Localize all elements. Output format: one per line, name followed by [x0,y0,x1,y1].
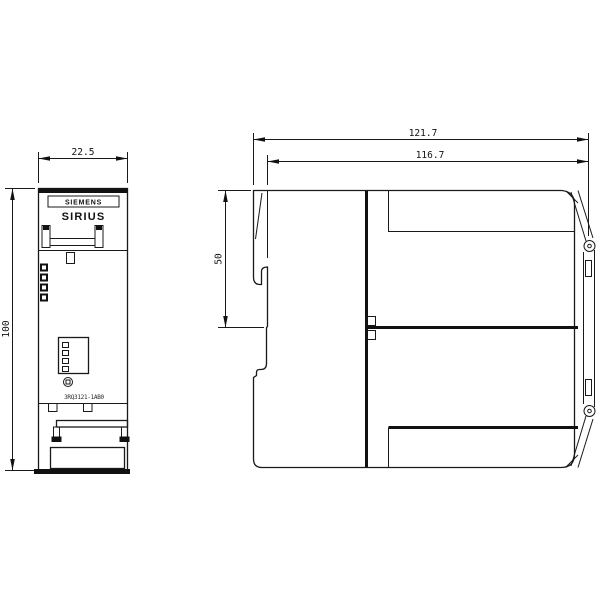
dim-arrow-top [10,189,15,201]
lever-slot-upper [586,261,592,277]
front-width-dimension: 22.5 [39,147,128,183]
lower-notch-left [49,404,58,412]
side-depth-body-dimension: 116.7 [268,150,589,185]
dim-arrow-top [223,191,228,203]
dim-arrow-bottom [10,459,15,471]
dim-arrow-left [39,156,51,161]
brand-logo-text: SIEMENS [65,200,102,207]
led-indicators [40,264,48,302]
front-height-dimension: 100 [1,189,35,471]
product-name-text: SIRIUS [62,211,106,223]
side-rail-section-label: 50 [214,253,225,265]
upper-terminal-lever [566,191,595,252]
rail-hook-spring [256,193,263,239]
screw-icon [64,378,73,387]
side-view: 121.7 116.7 50 [214,128,596,468]
upper-terminal-bracket [42,226,103,248]
front-height-label: 100 [1,320,12,337]
front-top-bar [39,189,128,194]
lever-slot-lower [586,380,592,396]
technical-drawing-canvas: 22.5 100 SIEMENS SIRIUS [0,0,600,600]
upper-slot [67,253,75,264]
upper-pivot-screw [584,241,595,252]
front-width-label: 22.5 [72,147,95,158]
order-number-text: 3RQ3121-1AB0 [64,394,104,401]
label-field [51,448,125,469]
lower-terminal-lever [566,406,595,468]
side-rail-section-dimension: 50 [214,191,265,328]
dim-arrow-bottom [223,316,228,328]
dim-arrow-right [577,159,589,164]
lower-terminal-bracket [52,421,130,443]
dim-arrow-left [254,137,266,142]
top-inset-panel [389,191,575,232]
dim-arrow-right [116,156,128,161]
side-depth-body-label: 116.7 [416,150,445,161]
lower-notch-right [84,404,93,412]
dim-arrow-right [577,137,589,142]
dim-arrow-left [268,159,280,164]
side-depth-total-label: 121.7 [409,128,438,139]
front-body-outline [39,189,128,471]
side-depth-total-dimension: 121.7 [254,128,589,236]
dip-switch-block [59,338,89,374]
dimension-drawing-page: { "drawing": { "colors": { "line": "#1a1… [0,0,600,600]
lower-pivot-screw [584,406,595,417]
front-bottom-bar [34,469,130,474]
front-view: 22.5 100 SIEMENS SIRIUS [1,147,130,474]
